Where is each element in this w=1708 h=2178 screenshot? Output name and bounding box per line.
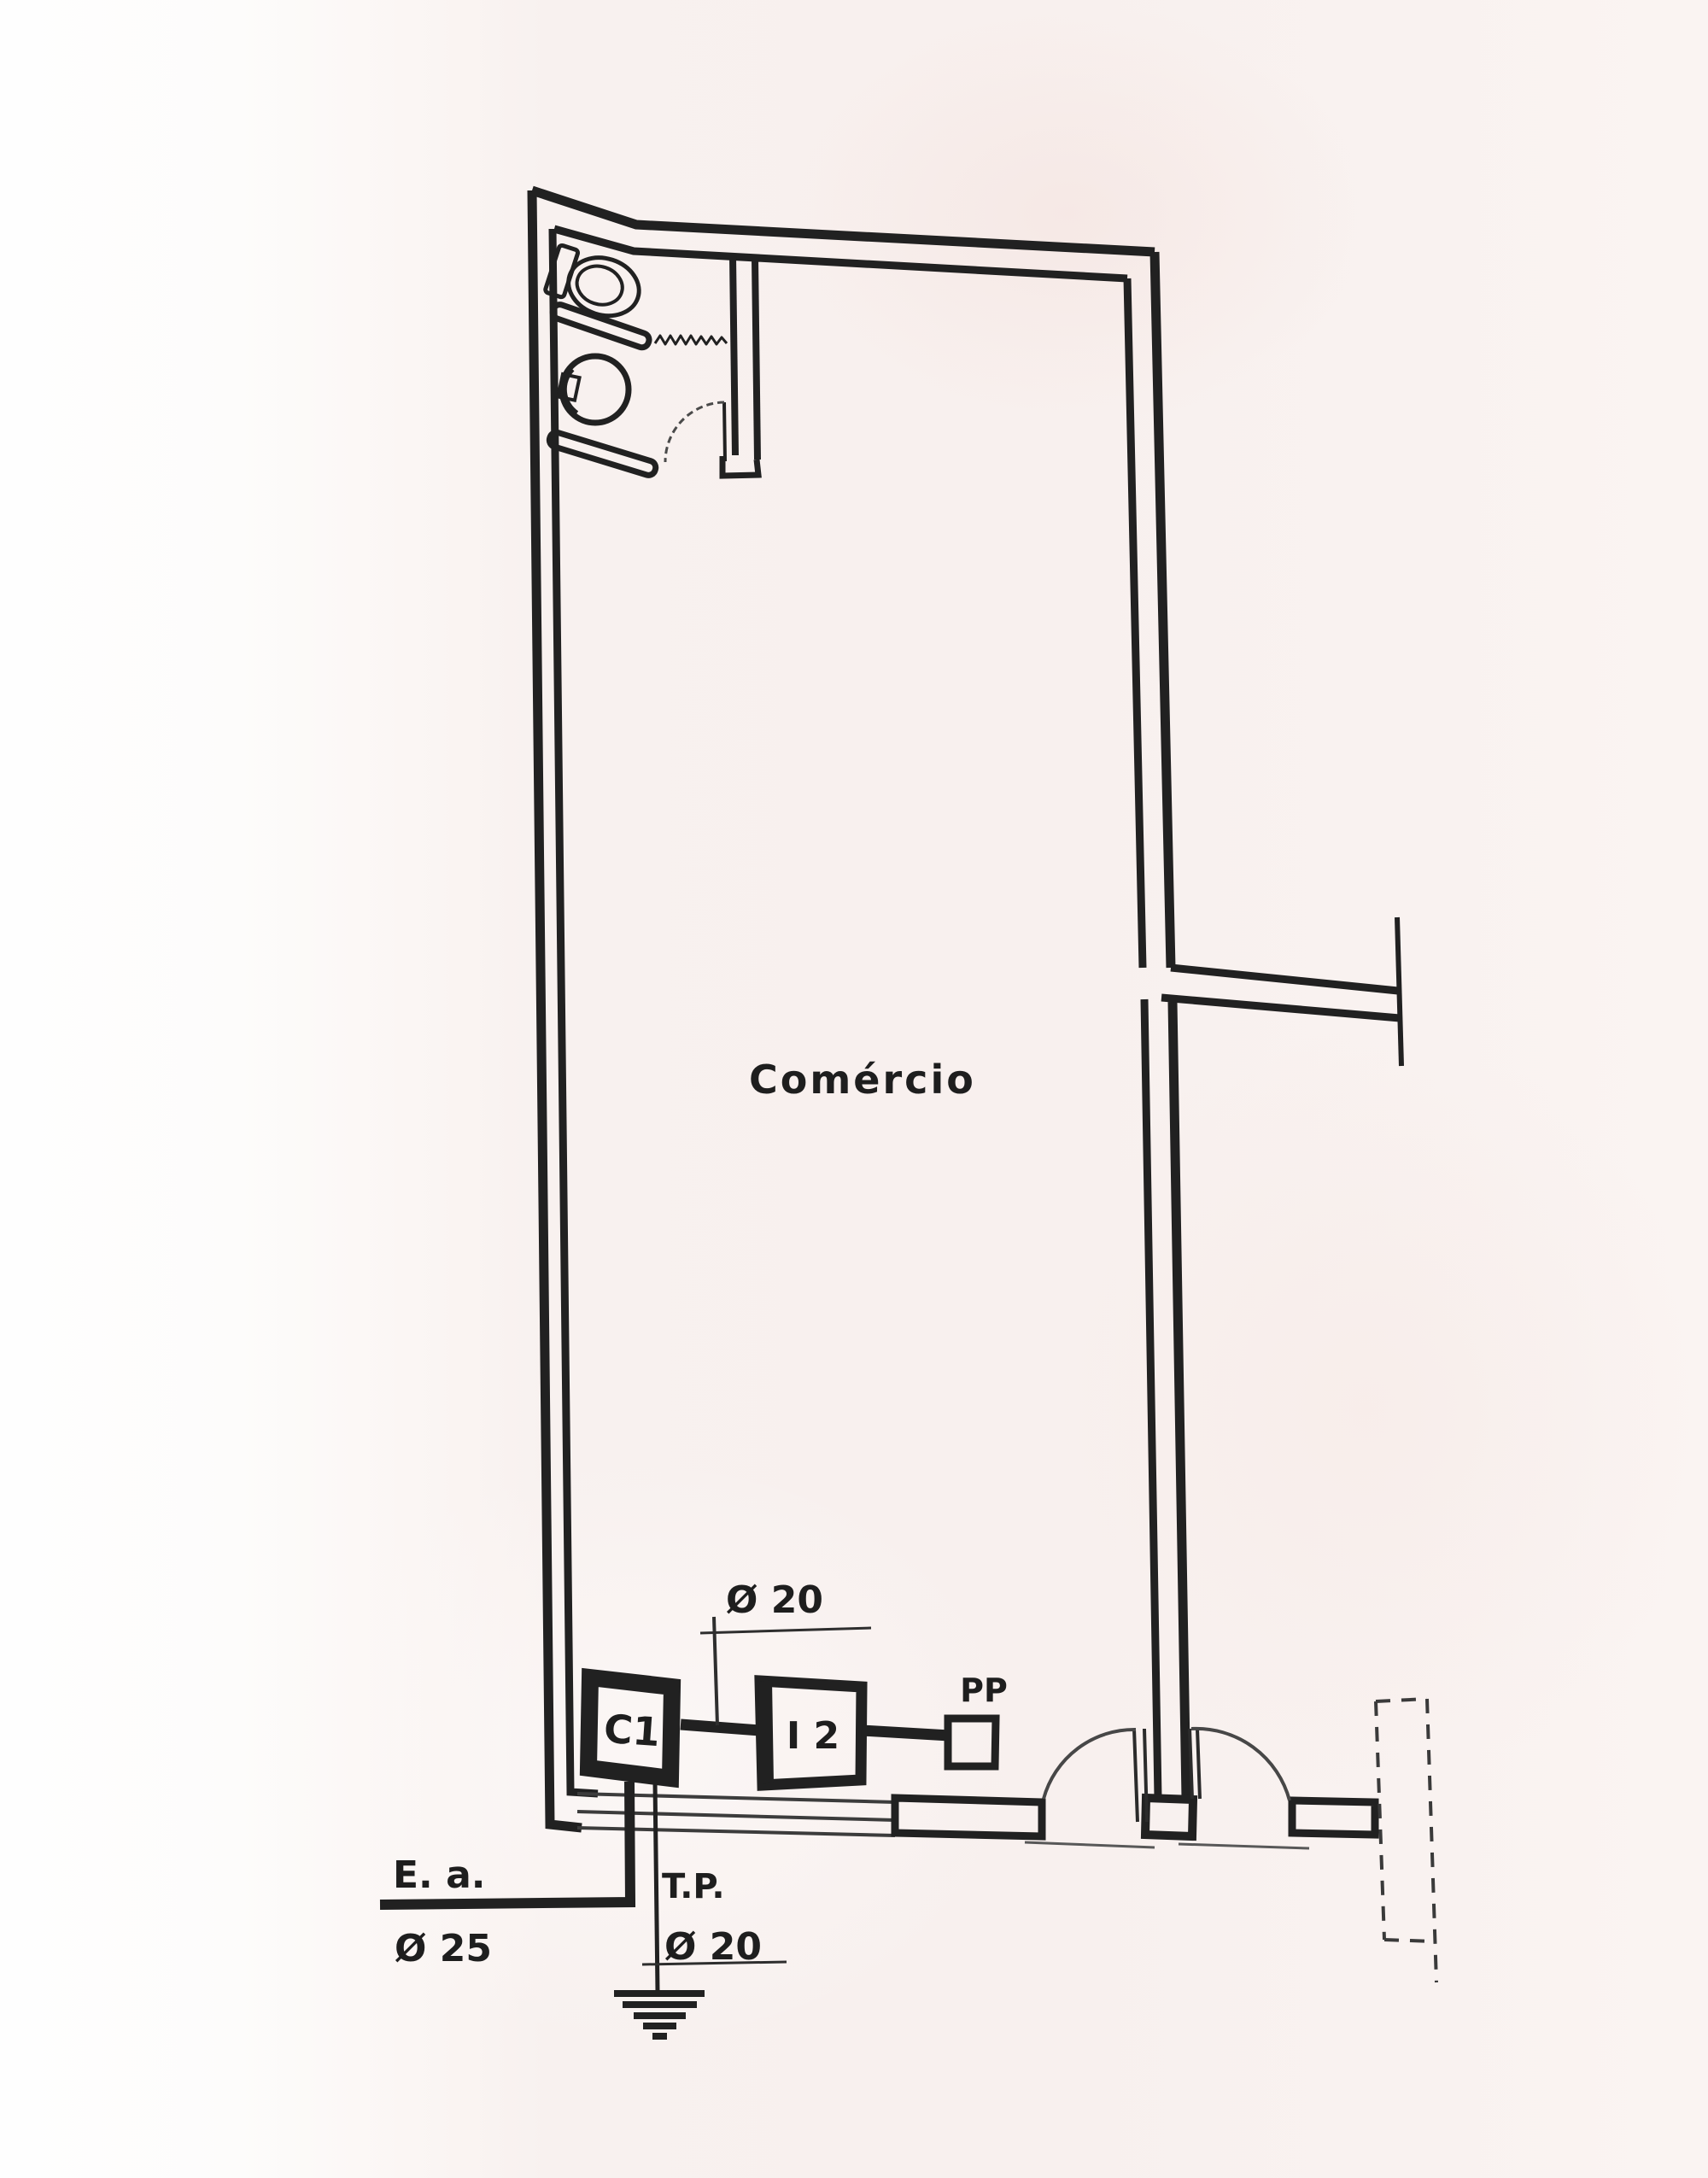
door2-swing [1191, 1729, 1290, 1800]
right-wall-inner [1127, 278, 1158, 1798]
bathroom-wall-right-face [755, 258, 757, 460]
tp-label: T.P. [662, 1867, 725, 1906]
tp-dim-label: Ø 20 [664, 1925, 762, 1969]
wire-i2-pp [862, 1730, 950, 1736]
door-threshold-line [1025, 1842, 1309, 1848]
ground-symbol-icon [614, 1994, 705, 2036]
door2-leaf [1190, 1729, 1200, 1799]
dashed-projection [1376, 1699, 1436, 1982]
ea-label: E. a. [393, 1853, 486, 1897]
dim-leader-horizontal [700, 1628, 871, 1633]
curtain-zigzag-icon [655, 336, 727, 344]
wing-wall-lower [1161, 998, 1400, 1018]
riser-schematic [380, 1617, 996, 2036]
sink-icon [558, 356, 629, 423]
bathroom-wall-left-face [733, 256, 735, 455]
pillar-foot [1145, 1798, 1193, 1836]
toilet-icon [543, 243, 646, 325]
dim-top-label: Ø 20 [726, 1578, 823, 1622]
partition-lower [547, 430, 657, 477]
i2-label: I 2 [787, 1714, 839, 1758]
bathroom [543, 243, 758, 477]
door1-leaf [1134, 1729, 1147, 1822]
bathroom-wall-foot [722, 456, 758, 476]
bathroom-door-swing [665, 402, 724, 462]
scanned-floor-plan-page: Comércio C1 I 2 PP Ø 20 E. a. Ø 25 T.P. … [0, 0, 1708, 2178]
pp-box [948, 1718, 996, 1766]
top-wall-outer [532, 190, 1155, 252]
door1-swing [1044, 1730, 1136, 1799]
wing-wall-upper [1171, 968, 1398, 991]
i2-box-thick-edge [765, 1681, 767, 1783]
right-door-sill [1292, 1800, 1375, 1835]
wire-c1-i2 [681, 1724, 760, 1730]
tp-conductor [655, 1782, 658, 1992]
c1-label: C1 [602, 1706, 661, 1755]
right-wall-outer [1155, 252, 1186, 1798]
ea-dim-label: Ø 25 [395, 1927, 492, 1970]
bathroom-door-leaf [724, 402, 725, 461]
wing-wall-endcap [1397, 917, 1401, 1066]
left-door-sill [895, 1798, 1042, 1836]
room-label: Comércio [749, 1057, 976, 1103]
partition-upper [551, 302, 651, 348]
floor-plan-drawing: Comércio C1 I 2 PP Ø 20 E. a. Ø 25 T.P. … [0, 0, 1708, 2178]
pp-label: PP [960, 1672, 1008, 1709]
left-wall-inner [553, 229, 598, 1794]
walls [532, 190, 1401, 1836]
